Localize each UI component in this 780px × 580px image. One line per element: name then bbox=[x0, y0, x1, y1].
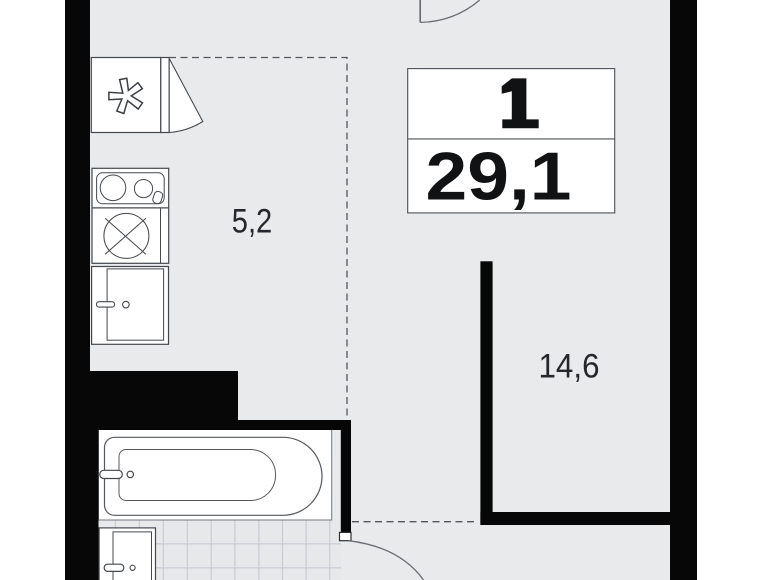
svg-text:29,1: 29,1 bbox=[426, 140, 572, 215]
svg-text:14,6: 14,6 bbox=[539, 347, 600, 385]
svg-text:5,2: 5,2 bbox=[232, 203, 273, 241]
